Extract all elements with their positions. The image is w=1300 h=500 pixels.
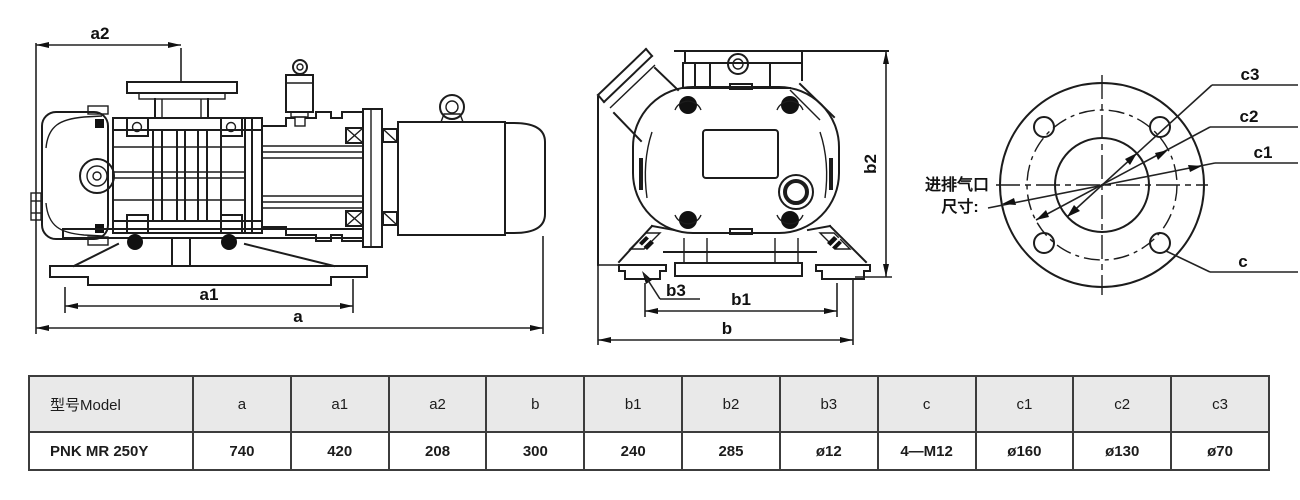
table-header-cell: b1 — [584, 376, 682, 432]
sight-glass — [703, 130, 778, 178]
table-value-row: PNK MR 250Y 740 420 208 300 240 285 ø12 … — [29, 432, 1269, 470]
front-view-drawing: b2 b3 b1 b — [598, 49, 892, 345]
table-header-cell: b3 — [780, 376, 878, 432]
pump-dimension-drawing: a2 — [0, 0, 1300, 370]
table-cell: ø12 — [780, 432, 878, 470]
dim-label-c3: c3 — [1241, 65, 1260, 84]
port-note-line2: 尺寸: — [941, 197, 978, 216]
dim-label-a: a — [293, 307, 303, 326]
table-cell: ø160 — [976, 432, 1074, 470]
dim-label-c: c — [1238, 252, 1247, 271]
table-cell: 4—M12 — [878, 432, 976, 470]
side-view-drawing: a2 — [31, 24, 545, 334]
table-cell: 285 — [682, 432, 780, 470]
table-cell: 420 — [291, 432, 389, 470]
table-cell: ø70 — [1171, 432, 1269, 470]
motor — [383, 95, 545, 235]
dim-label-b2: b2 — [861, 154, 880, 174]
table-header-cell: b — [486, 376, 584, 432]
table-cell: 240 — [584, 432, 682, 470]
port-note-line1: 进排气口 — [925, 175, 989, 194]
dim-label-a2: a2 — [91, 24, 110, 43]
table-cell: 740 — [193, 432, 291, 470]
table-header-cell: 型号Model — [29, 376, 193, 432]
dim-label-b: b — [722, 319, 732, 338]
dim-label-a1: a1 — [200, 285, 219, 304]
table-header-cell: c — [878, 376, 976, 432]
technical-drawing-page: a2 — [0, 0, 1300, 500]
dim-label-c2: c2 — [1240, 107, 1259, 126]
inlet-flange — [598, 49, 678, 265]
table-header-cell: c1 — [976, 376, 1074, 432]
flange-view-drawing: c3 c2 c1 c 进排气口 尺寸: — [925, 65, 1298, 295]
table-header-cell: c3 — [1171, 376, 1269, 432]
table-header-cell: a — [193, 376, 291, 432]
model-cell: PNK MR 250Y — [29, 432, 193, 470]
dim-label-b3: b3 — [666, 281, 686, 300]
table-cell: 208 — [389, 432, 487, 470]
table-cell: 300 — [486, 432, 584, 470]
table-header-cell: a1 — [291, 376, 389, 432]
dim-label-c1: c1 — [1254, 143, 1273, 162]
table-header-row: 型号Model a a1 a2 b b1 b2 b3 c c1 c2 c3 — [29, 376, 1269, 432]
table-cell: ø130 — [1073, 432, 1171, 470]
table-header-cell: a2 — [389, 376, 487, 432]
solenoid-valve — [286, 60, 313, 126]
dim-label-b1: b1 — [731, 290, 751, 309]
table-header-cell: b2 — [682, 376, 780, 432]
dimension-table: 型号Model a a1 a2 b b1 b2 b3 c c1 c2 c3 PN… — [28, 375, 1270, 471]
table-header-cell: c2 — [1073, 376, 1171, 432]
